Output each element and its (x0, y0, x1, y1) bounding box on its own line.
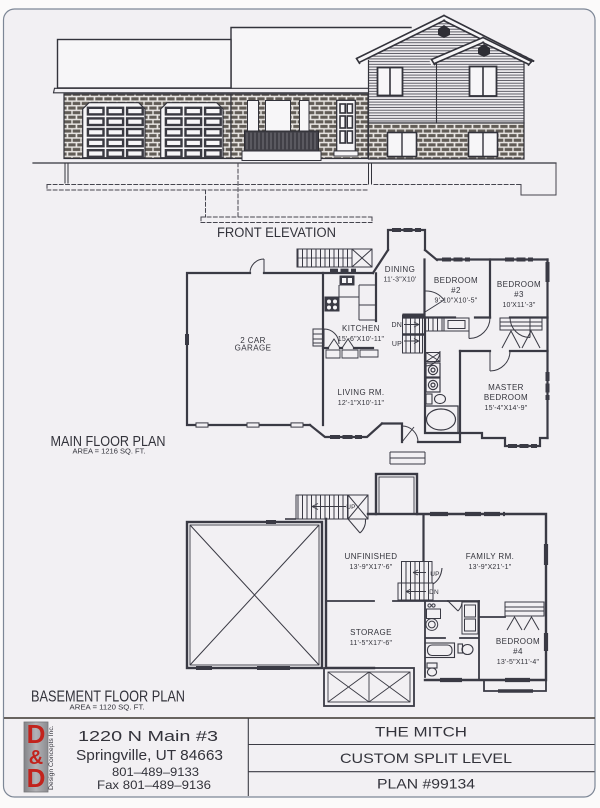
svg-text:D: D (27, 763, 46, 793)
svg-text:#3: #3 (514, 290, 524, 299)
svg-text:11'-5"X17'-6": 11'-5"X17'-6" (350, 640, 393, 647)
svg-text:KITCHEN: KITCHEN (342, 324, 380, 333)
svg-text:UP: UP (430, 571, 439, 578)
svg-text:FRONT ELEVATION: FRONT ELEVATION (217, 225, 336, 240)
svg-text:PLAN #99134: PLAN #99134 (377, 776, 475, 792)
svg-text:UP: UP (346, 504, 355, 511)
svg-text:MASTER: MASTER (488, 383, 524, 392)
svg-text:THE MITCH: THE MITCH (375, 724, 467, 740)
svg-text:801–489–9133: 801–489–9133 (112, 765, 199, 779)
svg-text:MAIN FLOOR PLAN: MAIN FLOOR PLAN (51, 433, 166, 450)
svg-text:AREA = 1216 SQ. FT.: AREA = 1216 SQ. FT. (73, 449, 146, 456)
svg-text:15'-4"X14'-9": 15'-4"X14'-9" (485, 405, 528, 412)
svg-text:BEDROOM: BEDROOM (484, 393, 528, 402)
svg-text:DINING: DINING (385, 265, 415, 274)
svg-text:15'-6"X10'-11": 15'-6"X10'-11" (338, 336, 385, 343)
svg-text:UNFINISHED: UNFINISHED (345, 552, 398, 561)
svg-text:STORAGE: STORAGE (350, 628, 392, 637)
svg-text:9'-10"X10'-5": 9'-10"X10'-5" (435, 298, 478, 305)
svg-text:BASEMENT FLOOR PLAN: BASEMENT FLOOR PLAN (31, 689, 185, 706)
svg-text:BEDROOM: BEDROOM (496, 637, 540, 646)
svg-text:D: D (27, 719, 46, 749)
svg-text:Springville, UT 84663: Springville, UT 84663 (76, 747, 223, 764)
svg-text:DN: DN (391, 322, 402, 329)
svg-text:1220 N Main #3: 1220 N Main #3 (78, 728, 218, 745)
svg-text:#4: #4 (513, 647, 523, 656)
svg-text:Fax 801–489–9136: Fax 801–489–9136 (97, 778, 211, 792)
svg-text:13'-9"X21'-1": 13'-9"X21'-1" (469, 564, 512, 571)
svg-text:11'-3"X10': 11'-3"X10' (383, 277, 416, 284)
svg-text:LIVING RM.: LIVING RM. (337, 388, 384, 397)
svg-text:#2: #2 (451, 286, 461, 295)
svg-text:BEDROOM: BEDROOM (434, 276, 478, 285)
svg-text:GARAGE: GARAGE (235, 344, 272, 353)
svg-text:13'-5"X11'-4": 13'-5"X11'-4" (497, 659, 540, 666)
svg-text:13'-9"X17'-6": 13'-9"X17'-6" (350, 564, 393, 571)
svg-text:10'X11'-3": 10'X11'-3" (502, 302, 535, 309)
svg-text:BEDROOM: BEDROOM (497, 280, 541, 289)
svg-text:Design Concepts Inc.: Design Concepts Inc. (48, 725, 55, 790)
svg-text:12'-1"X10'-11": 12'-1"X10'-11" (338, 400, 385, 407)
svg-text:FAMILY RM.: FAMILY RM. (466, 552, 515, 561)
svg-text:UP: UP (392, 341, 402, 348)
svg-text:AREA = 1120 SQ. FT.: AREA = 1120 SQ. FT. (70, 705, 145, 712)
svg-text:DN: DN (429, 589, 439, 596)
svg-text:CUSTOM SPLIT LEVEL: CUSTOM SPLIT LEVEL (340, 750, 512, 766)
